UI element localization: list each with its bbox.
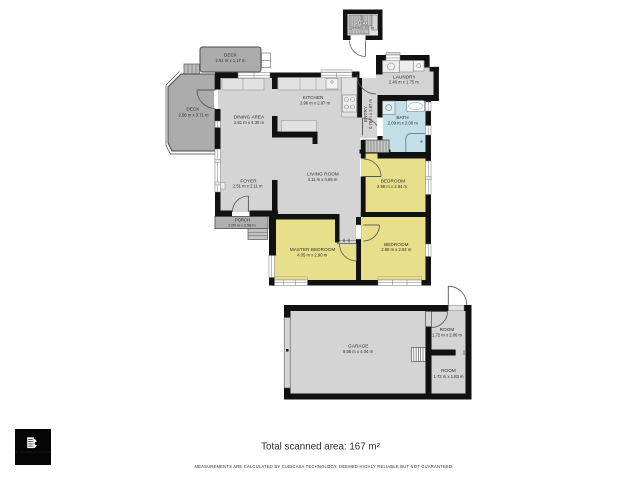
svg-text:GARAGE: GARAGE <box>348 344 368 349</box>
svg-text:ROOM: ROOM <box>441 368 456 373</box>
svg-text:BATH: BATH <box>396 115 408 120</box>
svg-text:MEASUREMENTS ARE CALCULATED BY: MEASUREMENTS ARE CALCULATED BY CUBICASA … <box>194 464 453 469</box>
svg-text:PORCH: PORCH <box>235 218 250 223</box>
svg-text:9.58 m x 4.04 m: 9.58 m x 4.04 m <box>343 349 374 354</box>
svg-text:Total scanned area: 167 m²: Total scanned area: 167 m² <box>261 442 380 453</box>
svg-text:2 m x 1.62 m: 2 m x 1.62 m <box>350 26 375 31</box>
svg-text:MASTER BEDROOM: MASTER BEDROOM <box>290 247 336 252</box>
svg-text:4.11 m x 4.65 m: 4.11 m x 4.65 m <box>308 177 338 182</box>
svg-text:KITCHEN: KITCHEN <box>303 95 324 100</box>
svg-text:2.00 m x 0.58 m: 2.00 m x 0.58 m <box>228 224 255 228</box>
svg-text:DECK: DECK <box>224 53 238 58</box>
svg-text:2.06 m x 3.71 m: 2.06 m x 3.71 m <box>178 113 209 118</box>
svg-text:2.51 m x 2.11 m: 2.51 m x 2.11 m <box>233 184 263 189</box>
svg-text:2.99 m x 2.92 m: 2.99 m x 2.92 m <box>381 247 412 252</box>
svg-text:DECK: DECK <box>186 107 200 112</box>
svg-text:DINING AREA: DINING AREA <box>234 115 266 120</box>
svg-text:2.98 m x 2.84 m: 2.98 m x 2.84 m <box>377 184 408 189</box>
svg-text:0.79 m x 2.87 m: 0.79 m x 2.87 m <box>368 98 373 129</box>
svg-text:LIVING ROOM: LIVING ROOM <box>307 172 339 177</box>
svg-text:1.72 m x 2.06 m: 1.72 m x 2.06 m <box>432 332 463 337</box>
svg-text:2.51 m x 4.30 m: 2.51 m x 4.30 m <box>234 120 265 125</box>
svg-text:3.96 m x 2.87 m: 3.96 m x 2.87 m <box>300 101 331 106</box>
svg-text:1.72 m x 1.83 m: 1.72 m x 1.83 m <box>433 374 464 379</box>
svg-text:3D SCANNED FLOORPLANS: 3D SCANNED FLOORPLANS <box>15 451 51 454</box>
svg-text:BEDROOM: BEDROOM <box>381 179 406 184</box>
svg-text:2.09 m x 2.00 m: 2.09 m x 2.00 m <box>388 120 419 125</box>
svg-text:ROOM: ROOM <box>440 327 455 332</box>
svg-text:4.05 m x 2.90 m: 4.05 m x 2.90 m <box>297 252 328 257</box>
svg-text:2.46 m x 1.75 m: 2.46 m x 1.75 m <box>389 80 420 85</box>
svg-text:2.91 m x 1.17 m: 2.91 m x 1.17 m <box>215 58 246 63</box>
